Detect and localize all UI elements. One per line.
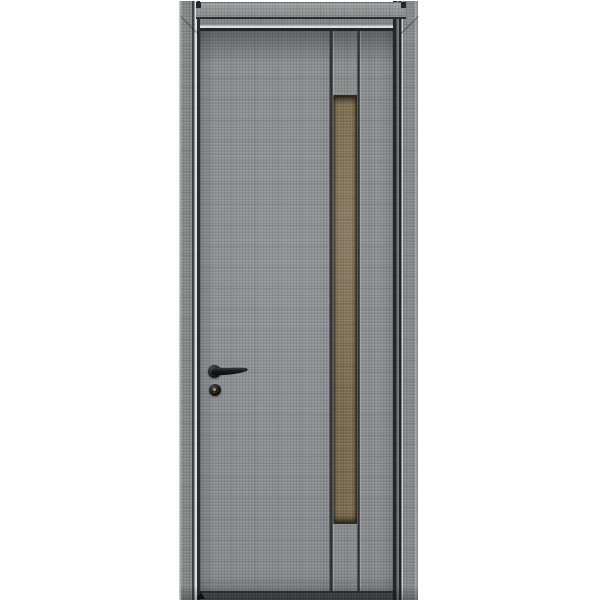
door-groove-right bbox=[357, 31, 361, 591]
door-product-photo bbox=[0, 0, 600, 600]
floor-door-stop bbox=[197, 592, 205, 599]
frame-header-board bbox=[196, 2, 406, 19]
keyhole bbox=[213, 388, 216, 391]
keyhole-escutcheon bbox=[209, 384, 221, 396]
frame-header-corner-cap-left bbox=[196, 2, 201, 8]
door-inlay-strip bbox=[333, 95, 357, 524]
frame-header-corner-cap-right bbox=[401, 2, 406, 8]
threshold-shadow bbox=[199, 591, 393, 600]
door-leaf bbox=[199, 31, 393, 593]
frame-left-jamb bbox=[179, 1, 200, 600]
lever-handle bbox=[206, 362, 250, 377]
door-groove-left bbox=[329, 31, 333, 591]
frame-right-jamb bbox=[393, 1, 418, 600]
